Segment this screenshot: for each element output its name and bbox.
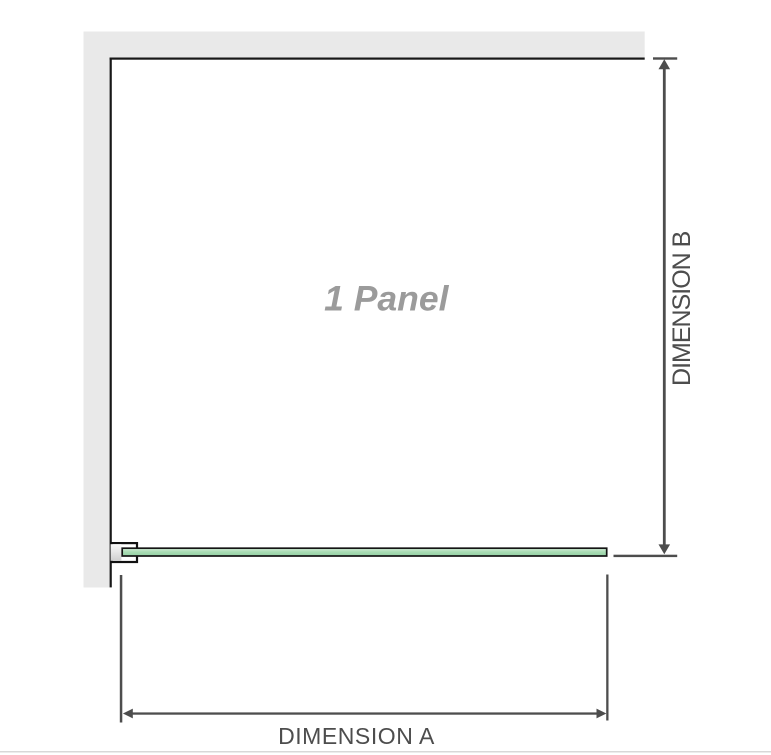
svg-text:DIMENSION B: DIMENSION B [668, 231, 696, 386]
svg-text:DIMENSION A: DIMENSION A [278, 723, 435, 749]
svg-text:1 Panel: 1 Panel [324, 279, 449, 319]
